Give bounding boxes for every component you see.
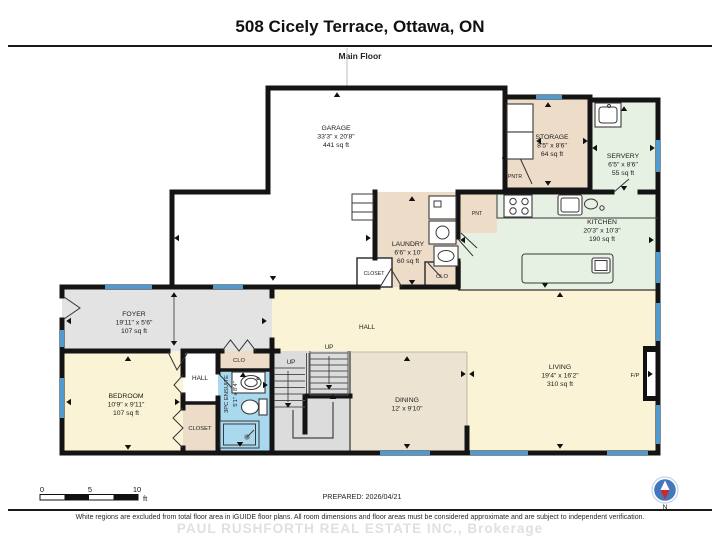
servery-label: SERVERY — [607, 153, 640, 160]
scale-tick-0: 0 — [40, 485, 44, 494]
foyer-label: FOYER — [122, 311, 146, 318]
fireplace-label: F/P — [630, 373, 639, 379]
pantry-storage-label: PNTR — [508, 174, 522, 180]
servery-dims: 6'5" x 8'6" — [608, 162, 638, 169]
kitchen-area: 190 sq ft — [589, 236, 615, 243]
kitchen-dims: 20'3" x 10'3" — [583, 228, 621, 235]
stairs-up-right-label: UP — [325, 344, 334, 351]
storage-area: 64 sq ft — [541, 151, 563, 158]
clo-bedroom-label: CLO — [233, 358, 245, 364]
laundry-area: 60 sq ft — [397, 258, 419, 265]
ensuite-dims: 5'1" x 8'4" — [233, 381, 239, 406]
dryer-icon — [429, 221, 456, 244]
living-label: LIVING — [549, 364, 571, 371]
clo-kitchen-label: CLO — [436, 274, 448, 280]
washer-icon — [429, 196, 456, 219]
stairs-up-left-label: UP — [287, 359, 296, 366]
storage-label: STORAGE — [535, 134, 569, 141]
living-area: 310 sq ft — [547, 381, 573, 388]
storage-shelf-icon — [507, 104, 533, 132]
laundry-dims: 6'6" x 10' — [394, 250, 421, 257]
dining-label: DINING — [395, 397, 419, 404]
garage-label: GARAGE — [321, 125, 351, 132]
pantry-kitchen-label: PNT — [472, 211, 483, 217]
servery-area: 55 sq ft — [612, 170, 634, 177]
room-clo-bedroom — [218, 351, 272, 370]
dining-dims: 12' x 9'10" — [391, 406, 423, 413]
prepared-date: PREPARED: 2026/04/21 — [323, 492, 402, 501]
scale-tick-5: 5 — [88, 485, 92, 494]
closet-bedroom-label: CLOSET — [188, 426, 212, 432]
floorplan-drawing: GARAGE 33'3" x 20'8" 441 sq ft STORAGE 8… — [0, 0, 720, 557]
bedroom-dims: 10'9" x 9'11" — [108, 402, 145, 409]
scale-tick-10: 10 — [133, 485, 141, 494]
kitchen-label: KITCHEN — [587, 219, 617, 226]
storage-shelf-icon — [507, 132, 533, 159]
floorplan-page: 508 Cicely Terrace, Ottawa, ON Main Floo… — [0, 0, 720, 557]
hall-bedroom-label: HALL — [192, 375, 208, 382]
storage-dims: 8'5" x 8'6" — [537, 143, 567, 150]
laundry-label: LAUNDRY — [392, 241, 425, 248]
garage-dims: 33'3" x 20'8" — [317, 134, 355, 141]
stove-icon — [504, 195, 532, 217]
brokerage-watermark: PAUL RUSHFORTH REAL ESTATE INC., Brokera… — [0, 521, 720, 536]
toilet-icon — [242, 400, 259, 414]
bedroom-area: 107 sq ft — [113, 410, 139, 417]
compass-icon: N — [652, 477, 678, 511]
closet-laundry-label: CLOSET — [364, 271, 386, 277]
hall-main-label: HALL — [359, 324, 375, 331]
disclaimer-text: White regions are excluded from total fl… — [0, 514, 720, 521]
ensuite-label: 3PC ENSUITE — [224, 375, 230, 413]
bedroom-label: BEDROOM — [108, 393, 143, 400]
room-foyer — [62, 287, 272, 351]
footer-divider — [8, 509, 712, 511]
living-dims: 19'4" x 16'2" — [541, 373, 579, 380]
foyer-area: 107 sq ft — [121, 328, 147, 335]
garage-area: 441 sq ft — [323, 142, 349, 149]
foyer-dims: 19'11" x 5'6" — [116, 320, 153, 327]
scale-bar: 0 5 10 ft — [40, 485, 148, 503]
toilet-tank-icon — [259, 399, 267, 415]
room-fills — [62, 88, 658, 453]
scale-unit: ft — [143, 494, 148, 503]
